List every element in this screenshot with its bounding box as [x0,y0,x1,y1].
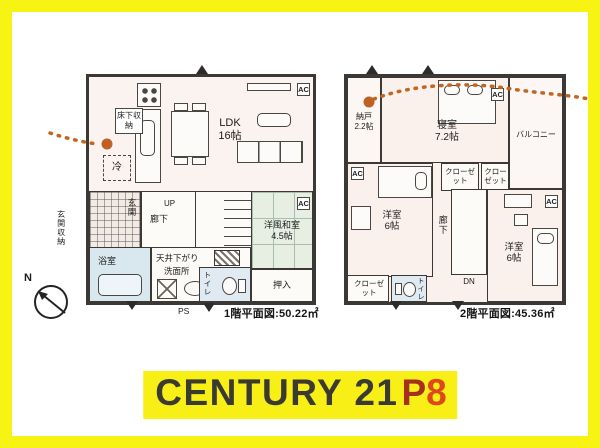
bathroom: 浴室 [89,247,151,302]
pillow-icon [444,85,460,95]
entrance-area: 玄関 [89,191,141,249]
western-room-size: 6帖 [507,253,522,264]
western-room-left: AC 洋室 6帖 [347,163,433,277]
ldk-label: LDK 16帖 [207,117,253,143]
tatami-room-label: 洋風和室 4.5帖 [252,220,312,242]
staircase-down [451,189,487,275]
western-room-name: 洋室 [504,242,523,253]
ac-unit-badge: AC [545,195,558,208]
storeroom-label: 納戸 2.2帖 [348,112,380,131]
vent-triangle-icon [196,65,208,74]
floor1-caption: 1階平面図:50.22㎡ [224,305,319,321]
hallway-label: 廊下 [437,215,448,235]
bedroom-size: 7.2帖 [435,132,459,143]
dining-table [171,111,209,157]
pillow-icon [467,85,483,95]
compass: N [22,272,74,324]
compass-north-label: N [24,272,32,285]
vent-triangle-icon [366,65,378,74]
bed-icon [378,166,432,198]
stair-treads [224,192,252,248]
brand-suffix-8: 8 [426,372,447,414]
chair-icon [192,103,206,111]
closet-c: クローゼット [347,275,389,302]
vent-triangle-icon [390,301,402,310]
bedroom: 寝室 7.2帖 AC [381,77,509,163]
storeroom-name: 納戸 [356,112,372,121]
closet-b: クローゼット [481,163,509,191]
fridge-box: 冷 [103,155,131,181]
hatched-ceiling-area [214,250,240,266]
western-room-size: 6帖 [385,221,400,232]
ac-unit-badge: AC [351,167,364,180]
toilet-label: トイレ [203,271,212,297]
brand-suffix-p: P [401,372,426,414]
bedroom-name: 寝室 [437,120,457,131]
ceiling-drop-label: 天井下がり [156,253,199,263]
stairs-down-label: DN [455,277,483,287]
western-room-label: 洋室 6帖 [492,242,536,265]
toilet-label: トイレ [416,277,424,301]
stove-icon [137,83,161,107]
ac-unit-badge: AC [297,197,310,210]
closet-label: クローゼット [444,167,476,185]
toilet-room: トイレ [199,267,251,302]
entrance-storage-label: 玄関収納 [56,210,66,246]
side-table [257,113,291,127]
toilet-tank-icon [238,279,246,293]
bathtub-icon [98,274,142,296]
ldk-name: LDK [219,117,240,129]
vent-triangle-icon [203,303,215,312]
closet-label: クローゼット [483,167,508,185]
chair-icon [174,103,188,111]
closet-a: クローゼット [441,163,479,191]
balcony-label: バルコニー [510,130,562,140]
vent-triangle-icon [126,301,138,310]
floor-storage-label: 床下収納 [117,111,141,130]
pipe-space-label: PS [178,306,189,316]
balcony: バルコニー [509,77,563,189]
chair-icon [514,214,528,226]
futon-closet-label: 押入 [252,280,312,291]
toilet-room: トイレ [391,275,427,302]
tatami-room: 洋風和室 4.5帖 AC [251,191,313,269]
vent-triangle-icon [422,65,434,74]
ac-unit-badge: AC [491,88,504,101]
floor-storage-box: 床下収納 [115,108,143,134]
staircase-up [195,191,253,249]
washroom-label: 洗面所 [164,266,190,276]
stairs-up-label: UP [164,199,175,209]
ac-unit-badge: AC [297,83,310,96]
floor2-plan: 納戸 2.2帖 寝室 7.2帖 AC バルコニー AC [344,74,566,305]
floorplan-flyer: 床下収納 冷 LDK 16帖 AC 玄関 UP 廊下 [0,0,600,448]
floor2-caption: 2階平面図:45.36㎡ [460,305,555,321]
western-room-label: 洋室 6帖 [366,210,418,233]
closet-label: クローゼット [352,279,386,297]
floor1-plan: 床下収納 冷 LDK 16帖 AC 玄関 UP 廊下 [86,74,316,305]
western-room-name: 洋室 [382,210,401,221]
entrance-label: 玄関 [127,198,137,217]
hallway-area: UP 廊下 [141,191,197,249]
bathroom-label: 浴室 [98,256,116,267]
sofa-icon [237,141,303,163]
double-bed-icon [438,80,496,124]
tv-board [247,83,291,91]
storeroom-size: 2.2帖 [354,122,373,131]
brand-name: CENTURY 21 [155,372,398,414]
desk-icon [504,194,532,208]
pillow-icon [415,172,427,190]
brand-banner: CENTURY 21 P8 [143,371,457,419]
futon-closet: 押入 [251,269,313,302]
tatami-room-size: 4.5帖 [271,231,293,241]
toilet-bowl-icon [222,277,237,295]
tatami-room-name: 洋風和室 [264,220,300,230]
bedroom-label: 寝室 7.2帖 [418,120,476,144]
fridge-label: 冷 [104,162,130,174]
chair-icon [174,157,188,165]
hallway-label: 廊下 [150,214,168,225]
vent-triangle-icon [452,301,464,310]
toilet-bowl-icon [403,282,416,297]
chair-icon [192,157,206,165]
storeroom: 納戸 2.2帖 [347,77,381,163]
washing-machine-pan-icon [157,279,177,299]
western-room-right: AC 洋室 6帖 [487,189,563,302]
pillow-icon [537,233,554,244]
toilet-tank-icon [395,283,402,295]
